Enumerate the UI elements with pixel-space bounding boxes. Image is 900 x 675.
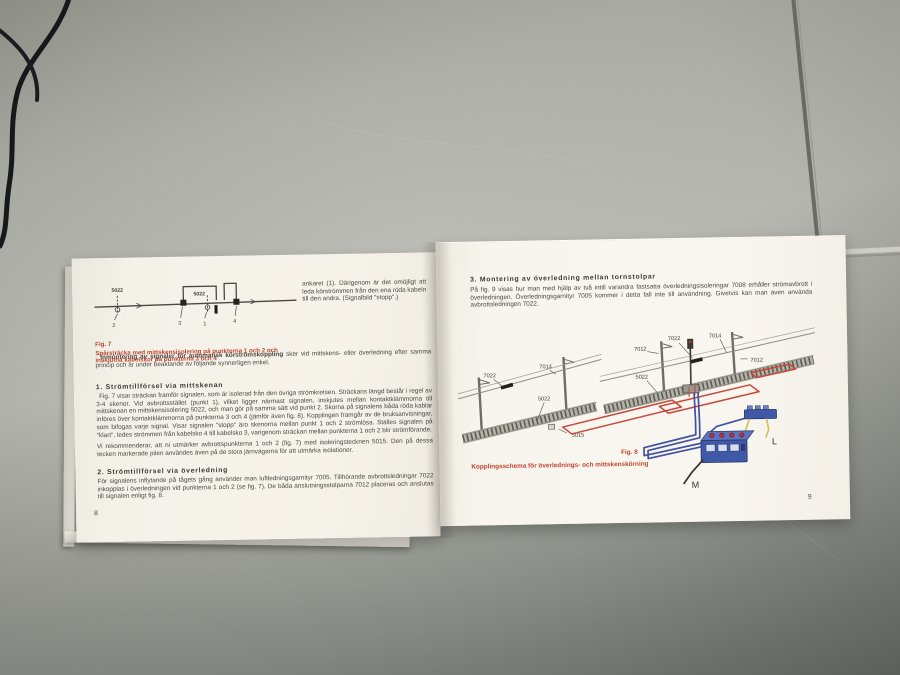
left-top-right-paragraph: ankaret (1). Därigenom är det omöjligt a… <box>302 278 426 303</box>
fig8-wire-break-left <box>501 385 513 388</box>
table-scratch <box>320 120 600 170</box>
fig7-leaders <box>180 306 236 318</box>
fig8-terminal-m: M <box>692 480 700 490</box>
fig8-label-7012-right: 7012 <box>750 358 763 364</box>
section2-heading: 2. Strömtillförsel via överledning <box>97 467 228 476</box>
fig7-label-5022-left: 5022 <box>111 288 123 294</box>
fig8-label-7014-right: 7014 <box>709 333 722 339</box>
fig7-label-5022-mid: 5022 <box>193 291 205 297</box>
fig8-label-5022-right: 5022 <box>636 375 649 381</box>
fig8-right-track <box>603 356 814 414</box>
fig7-point-2: 2 <box>112 323 115 329</box>
section3-paragraph: På fig. 9 visas hur man med hjälp av två… <box>470 281 812 310</box>
fig8-distributor-strip <box>744 405 776 419</box>
fig8-wire-break-right <box>690 359 702 362</box>
fig8-label: Fig. 8 <box>621 449 638 456</box>
fig7-cable-shoe-4 <box>233 299 239 305</box>
fig7-point2-insulation <box>114 296 120 320</box>
photo-scene: 5022 2 5022 3 <box>0 0 900 675</box>
table-seam <box>793 0 820 264</box>
section1-heading: 1. Strömtillförsel via mittskenan <box>96 382 223 391</box>
fig7-cable-brackets <box>183 283 236 300</box>
fig8-label-7012-left: 7012 <box>634 347 647 353</box>
fig8-signal <box>682 339 699 393</box>
fig7-point-3: 3 <box>178 321 181 327</box>
fig8-label-7022-left: 7022 <box>483 373 496 379</box>
page-number-right: 9 <box>808 494 812 501</box>
fig8-overhead-wire-right <box>599 328 816 382</box>
section1-paragraph-1: Fig. 7 visar sträckan framför signalen, … <box>96 387 433 439</box>
fig7-track-line <box>94 299 296 309</box>
table-seam-edge <box>797 0 824 262</box>
fig7-diagram: 5022 2 5022 3 <box>90 277 307 339</box>
fig8-terminal-l: L <box>772 436 777 446</box>
fig8-label-7022-right: 7022 <box>668 336 681 342</box>
page-number-left: 8 <box>94 510 98 517</box>
fig7-point-1: 1 <box>203 321 206 327</box>
fig8-label-7014-left: 7014 <box>539 364 552 370</box>
fig7-cable-shoe-3 <box>180 300 186 306</box>
section2-paragraph: För signalens inflytande på tågets gång … <box>97 472 433 501</box>
booklet-page-left: 5022 2 5022 3 <box>72 252 441 542</box>
power-cable <box>0 0 70 246</box>
booklet: 5022 2 5022 3 <box>49 227 854 555</box>
fig7-isolation-tick <box>214 305 217 314</box>
fig7-point1-insulation <box>204 295 210 318</box>
booklet-page-right: 3. Montering av överledning mellan torns… <box>435 235 850 526</box>
section1-paragraph-2: Vi rekommenderar, att ni utmärker avbrot… <box>97 437 433 458</box>
fig8-isolation-sign-5015 <box>549 424 555 429</box>
fig8-label-5022-left: 5022 <box>538 396 551 402</box>
fig7-point-4: 4 <box>233 319 236 325</box>
section3-heading: 3. Montering av överledning mellan torns… <box>470 273 656 283</box>
